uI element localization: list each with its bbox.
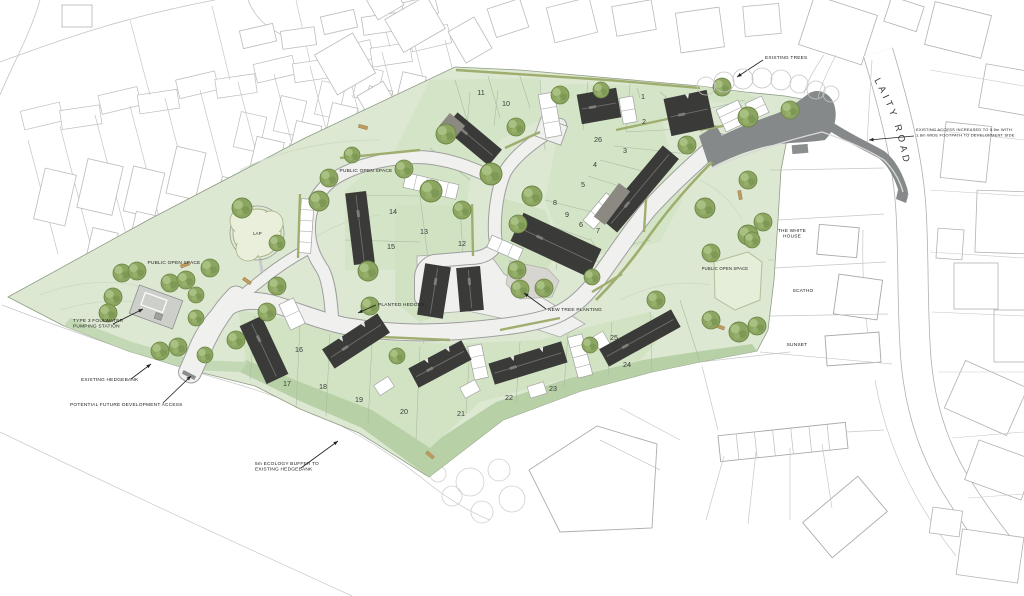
svg-text:SCATHO: SCATHO (793, 288, 814, 294)
svg-text:9: 9 (565, 210, 569, 219)
svg-text:17: 17 (283, 379, 291, 388)
svg-text:LAP: LAP (253, 231, 262, 236)
svg-text:PUBLIC OPEN SPACE: PUBLIC OPEN SPACE (340, 168, 393, 174)
svg-text:22: 22 (505, 393, 513, 402)
svg-text:8: 8 (553, 198, 557, 207)
svg-text:1.8m WIDE FOOTPATH TO DEVELOPM: 1.8m WIDE FOOTPATH TO DEVELOPMENT SIDE (916, 133, 1015, 138)
svg-text:EXISTING TREES: EXISTING TREES (765, 55, 807, 61)
svg-text:23: 23 (549, 384, 557, 393)
svg-text:PLANTED HEDGES: PLANTED HEDGES (378, 302, 425, 308)
svg-text:THE WHITE: THE WHITE (778, 228, 806, 234)
svg-text:10: 10 (502, 99, 510, 108)
svg-text:12: 12 (458, 239, 466, 248)
svg-text:SUNSET: SUNSET (787, 342, 808, 348)
svg-text:2: 2 (642, 117, 646, 126)
svg-text:POTENTIAL FUTURE DEVELOPMENT A: POTENTIAL FUTURE DEVELOPMENT ACCESS (70, 402, 183, 408)
svg-text:PUMPING STATION: PUMPING STATION (73, 324, 120, 330)
svg-text:15: 15 (387, 242, 395, 251)
svg-text:25: 25 (610, 333, 618, 342)
svg-text:11: 11 (477, 88, 484, 97)
svg-text:PUBLIC OPEN SPACE: PUBLIC OPEN SPACE (702, 266, 749, 271)
svg-text:HOUSE: HOUSE (783, 234, 801, 240)
svg-text:14: 14 (389, 207, 397, 216)
svg-text:3: 3 (623, 146, 627, 155)
svg-text:EXISTING HEDGEBANK: EXISTING HEDGEBANK (81, 377, 139, 383)
svg-text:24: 24 (623, 360, 631, 369)
svg-text:16: 16 (295, 345, 303, 354)
svg-text:EXISTING HEDGEBANK: EXISTING HEDGEBANK (255, 467, 313, 473)
svg-text:TYPE 3 FOULWATER: TYPE 3 FOULWATER (73, 318, 124, 324)
svg-text:5: 5 (581, 180, 585, 189)
svg-text:19: 19 (355, 395, 363, 404)
svg-text:18: 18 (319, 382, 327, 391)
svg-text:20: 20 (400, 407, 408, 416)
svg-text:7: 7 (596, 226, 600, 235)
svg-text:21: 21 (457, 409, 465, 418)
svg-text:26: 26 (594, 135, 602, 144)
svg-text:NEW TREE PLANTING: NEW TREE PLANTING (548, 307, 602, 313)
svg-text:6: 6 (579, 220, 583, 229)
svg-text:4: 4 (593, 160, 597, 169)
svg-text:1: 1 (641, 92, 645, 101)
svg-text:13: 13 (420, 227, 428, 236)
svg-text:PUBLIC OPEN SPACE: PUBLIC OPEN SPACE (148, 260, 201, 266)
svg-text:EXISTING ACCESS INCREASED TO 5: EXISTING ACCESS INCREASED TO 5.5m WITH (916, 127, 1012, 132)
